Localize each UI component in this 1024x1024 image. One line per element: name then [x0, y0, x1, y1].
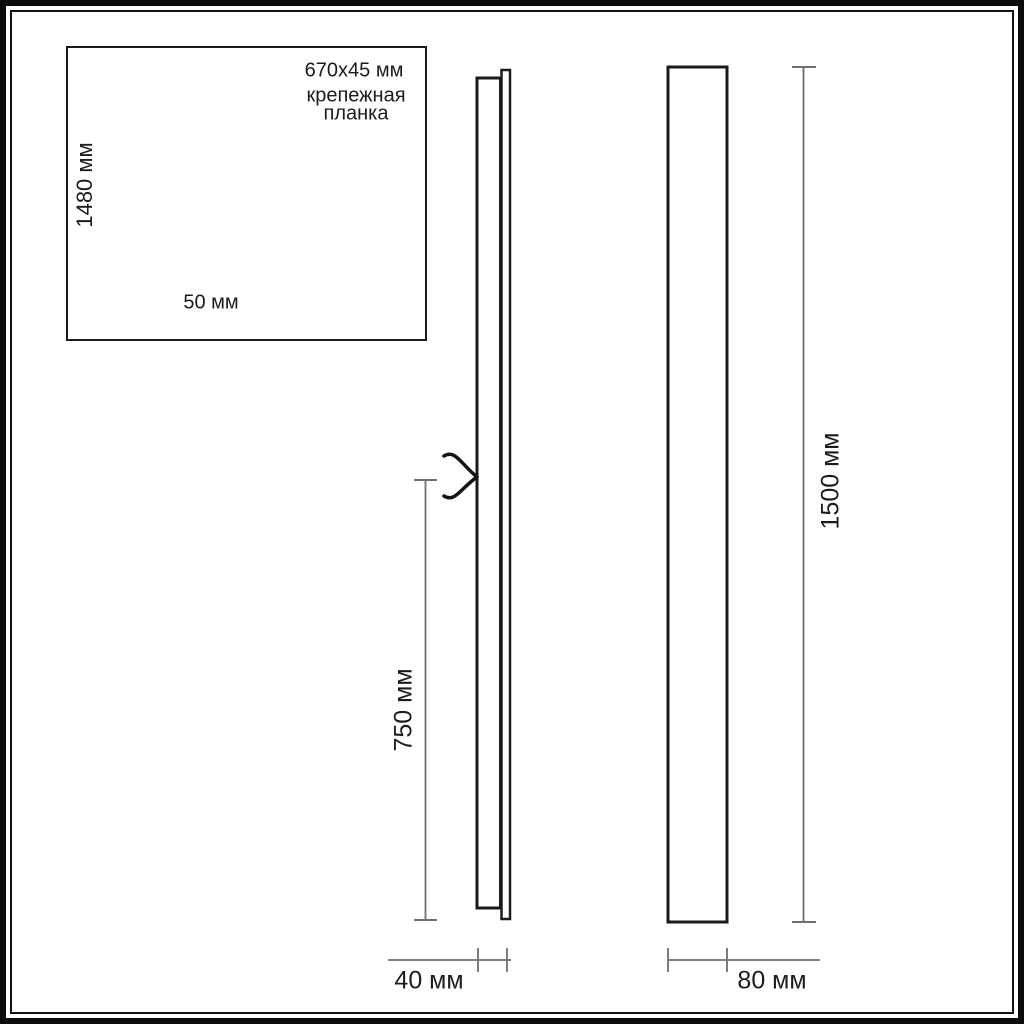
front-view-body — [668, 67, 727, 922]
depth-dimension-label: 40 мм — [394, 967, 463, 996]
front-height-dimension-label: 1500 мм — [817, 433, 846, 530]
inset-height-dimension-label: 1480 мм — [72, 142, 98, 227]
inset-width-dimension-label: 50 мм — [183, 292, 238, 315]
mounting-plate-size-label: 670x45 мм — [305, 60, 404, 83]
front-width-dimension-label: 80 мм — [737, 967, 806, 996]
side-view-body — [477, 78, 501, 908]
technical-drawing-page: 1480 мм 50 мм 670x45 мм крепежная планка… — [0, 0, 1024, 1024]
mount-center-pointer-lower — [444, 477, 477, 498]
mounting-plate-name-line2: планка — [324, 105, 389, 124]
side-view-mount-strip — [502, 70, 511, 919]
mount-center-pointer-upper — [444, 454, 477, 477]
front-view — [668, 67, 820, 972]
mount-center-dimension-label: 750 мм — [390, 668, 419, 751]
